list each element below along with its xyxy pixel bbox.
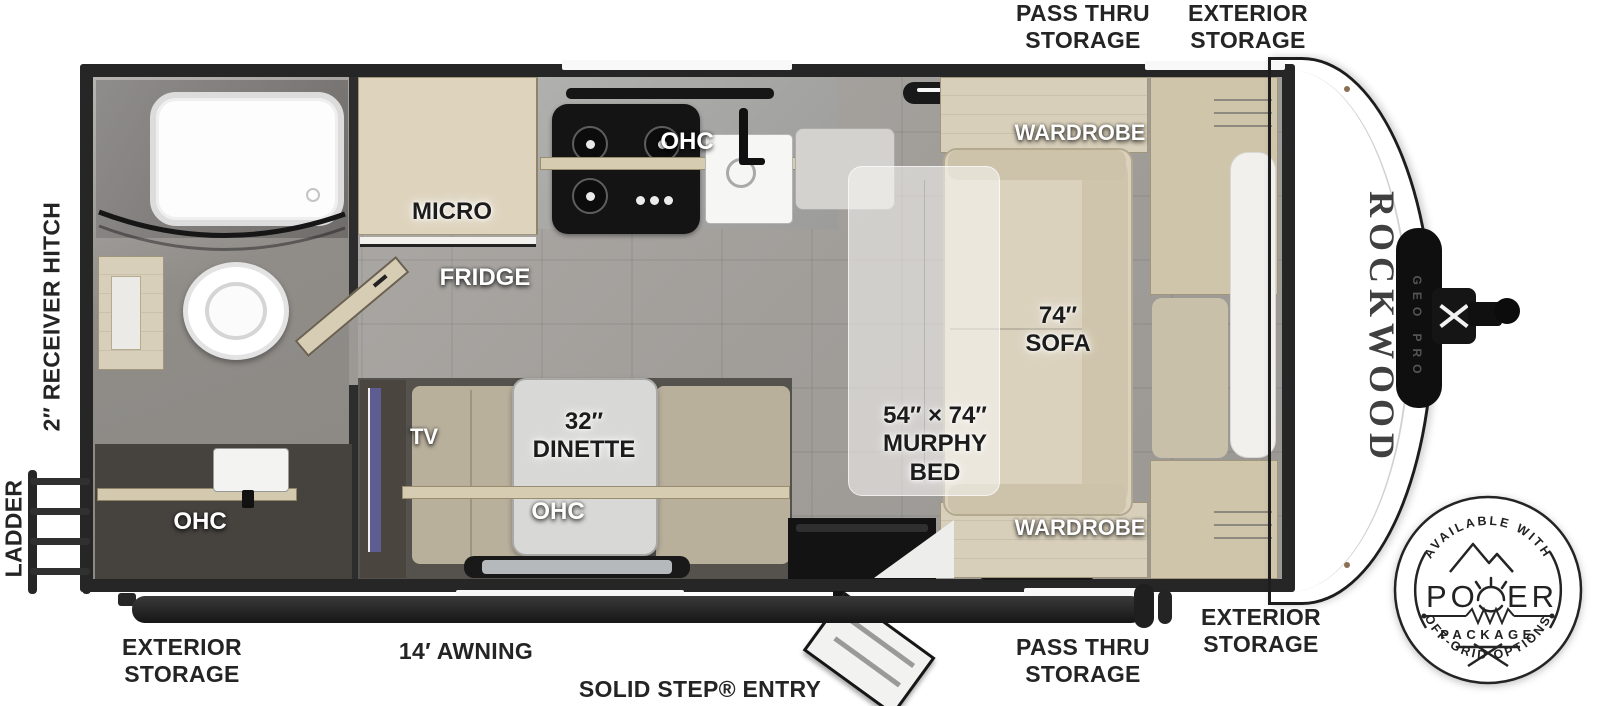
badge-power-right: ER [1507,579,1558,614]
label-kitchen-ohc: OHC [637,128,737,156]
door-handle [373,274,388,287]
dinette-word: DINETTE [514,436,654,464]
entry-landing-edge [796,524,928,532]
label-dinette-ohc: OHC [508,498,608,526]
ladder-rung [30,568,90,575]
badge-power-left: PO [1426,579,1479,614]
label-bottom-pass-thru-storage: PASS THRU STORAGE [988,634,1178,688]
rear-sink [213,448,289,492]
label-top-pass-thru-storage: PASS THRU STORAGE [988,0,1178,54]
label-bottom-exterior-storage-right: EXTERIOR STORAGE [1176,604,1346,658]
awning-end-cap [1134,584,1154,628]
top-front-window [1145,61,1285,70]
label-wardrobe-bottom: WARDROBE [990,515,1170,541]
cap-screw [1344,562,1350,568]
awning-roller [132,596,1144,623]
power-package-badge: AVAILABLE WITH PO ER PACKAGE OFF-GRID OP… [1390,492,1586,688]
bolster-cushion [1152,298,1228,458]
floorplan-image: ROCKWOOD GEO PRO OHC MICRO FRIDGE OHC WA… [0,0,1600,706]
window-glass [482,560,672,574]
sofa-word: SOFA [998,330,1118,358]
ladder-rail [82,470,91,594]
kitchen-faucet-spout [739,158,765,165]
dinette-window [464,556,690,578]
label-awning: 14′ AWNING [346,638,586,665]
sofa-size: 74″ [998,302,1118,330]
label-fridge: FRIDGE [415,264,555,292]
label-murphy-bed: 54″ × 74″ MURPHY BED [855,402,1015,487]
tv-panel [360,380,406,578]
ladder-rung [30,508,90,515]
ladder-rung [30,538,90,545]
microwave-cabinet-edge [360,237,536,247]
dinette-table [512,378,658,556]
murphy-size: 54″ × 74″ [855,402,1015,430]
dinette-bench-right [656,386,790,564]
label-sofa: 74″ SOFA [998,302,1118,359]
label-solid-step-entry: SOLID STEP® ENTRY [535,676,865,703]
hitch-ball [1494,298,1520,324]
burner [572,178,608,214]
label-rear-ohc: OHC [140,508,260,536]
label-top-exterior-storage: EXTERIOR STORAGE [1163,0,1333,54]
vanity-mirror [111,276,141,350]
range-hood [566,88,774,99]
brand-logo: ROCKWOOD [1359,178,1403,478]
toilet-seat [205,282,267,340]
cooktop-knobs [636,192,678,210]
wardrobe-hanging-rods [1214,500,1272,546]
top-window [562,60,792,70]
label-tv: TV [394,424,454,450]
kitchen-faucet [739,108,748,164]
label-receiver-hitch: 2″ RECEIVER HITCH [38,147,65,487]
rear-faucet [242,490,254,508]
bottom-window-strip [1024,588,1138,596]
label-dinette: 32″ DINETTE [514,408,654,465]
tv-screen [368,388,381,552]
label-ladder: LADDER [0,469,27,589]
label-micro: MICRO [382,198,522,226]
murphy-word1: MURPHY [855,430,1015,458]
dinette-size: 32″ [514,408,654,436]
bench-seam [470,390,472,560]
label-wardrobe-top: WARDROBE [990,120,1170,146]
awning-end-cap [1158,590,1172,624]
ladder-rail [28,470,37,594]
wardrobe-hanging-rods [1214,88,1272,134]
brand-model: GEO PRO [1408,228,1424,428]
murphy-word2: BED [855,459,1015,487]
label-bottom-exterior-storage-left: EXTERIOR STORAGE [97,634,267,688]
cap-screw [1344,86,1350,92]
